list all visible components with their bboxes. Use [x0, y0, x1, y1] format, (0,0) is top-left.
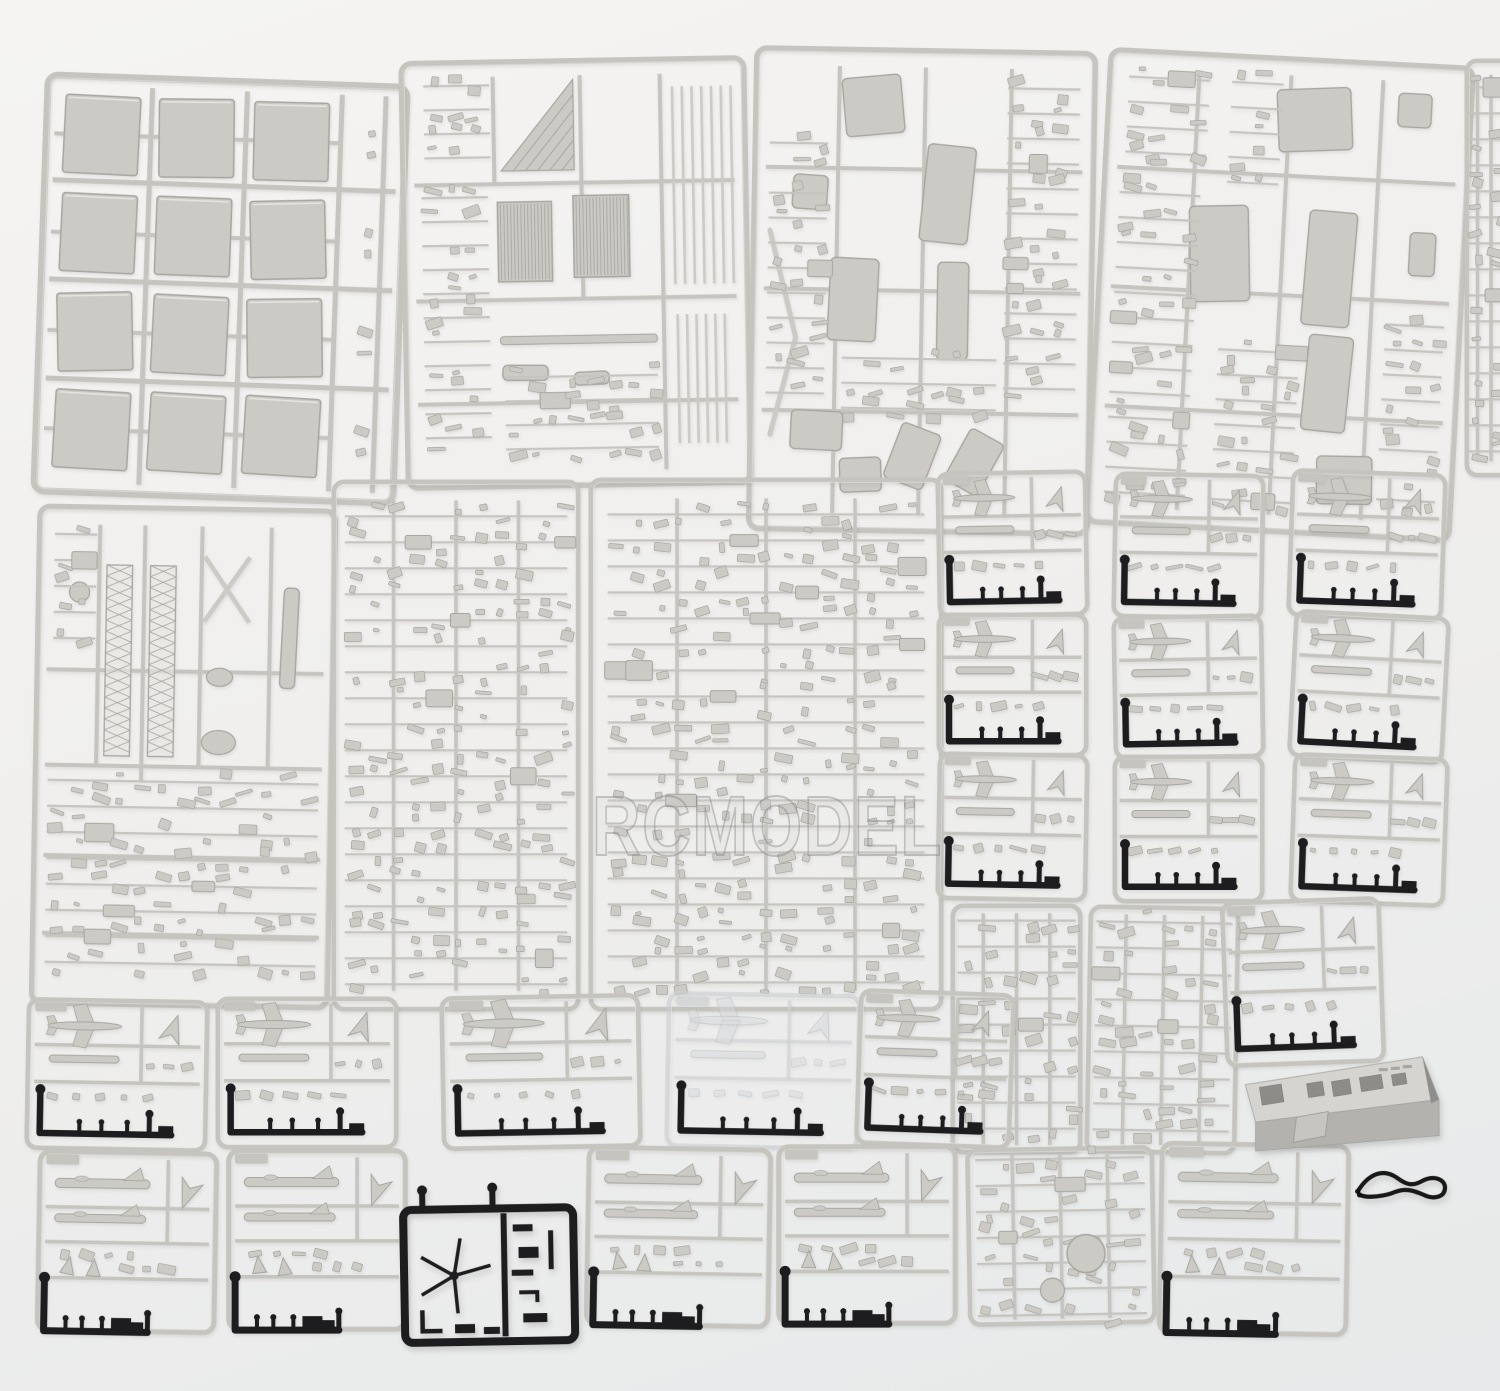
watermark-text: RCMODEL	[592, 778, 943, 875]
sprue-aircraft-14	[664, 990, 863, 1151]
sprue-aircraft-5	[1111, 613, 1267, 762]
sprue-misc-dense-disc	[964, 1144, 1157, 1327]
sprue-aircraft-2	[1111, 471, 1267, 622]
sprue-aircraft-10	[1219, 895, 1387, 1069]
sprue-jet-aircraft-1	[34, 1148, 219, 1335]
sprue-sponson-parts	[1084, 47, 1477, 544]
sprue-grating-rods	[398, 55, 753, 491]
sprue-jet-aircraft-2	[226, 1148, 408, 1332]
sprue-aircraft-3	[1285, 467, 1448, 622]
sprue-aircraft-6	[1286, 608, 1452, 766]
sprue-rotor-black	[399, 1184, 582, 1349]
sprue-aircraft-8	[1112, 754, 1265, 904]
sprue-deck-panels	[31, 72, 411, 506]
sprue-aircraft-12	[215, 996, 399, 1150]
sprue-aircraft-15	[853, 987, 1016, 1150]
sprue-hull-fittings	[746, 45, 1098, 537]
hull-box-part	[1238, 1055, 1441, 1152]
sprue-aircraft-1	[935, 469, 1091, 620]
sprue-aircraft-13	[439, 992, 644, 1152]
sprue-jet-aircraft-4	[776, 1144, 958, 1326]
sprue-small-fittings-a	[331, 479, 581, 1012]
sprue-small-fittings-b	[588, 477, 944, 1012]
sprue-weapons-dense-2	[1084, 904, 1241, 1157]
sprue-aircraft-4	[936, 612, 1089, 758]
sprue-right-edge-clipped	[1464, 58, 1500, 478]
sprue-jet-aircraft-3	[583, 1144, 773, 1329]
sprue-mast-details	[29, 503, 339, 1010]
photo-scene: RCMODEL	[0, 0, 1500, 1391]
sprue-aircraft-11	[24, 996, 211, 1153]
sprue-aircraft-7	[935, 751, 1091, 904]
sprue-aircraft-9	[1287, 751, 1450, 908]
black-cord	[1351, 1163, 1453, 1210]
sprue-aircraft-16	[1156, 1140, 1351, 1337]
